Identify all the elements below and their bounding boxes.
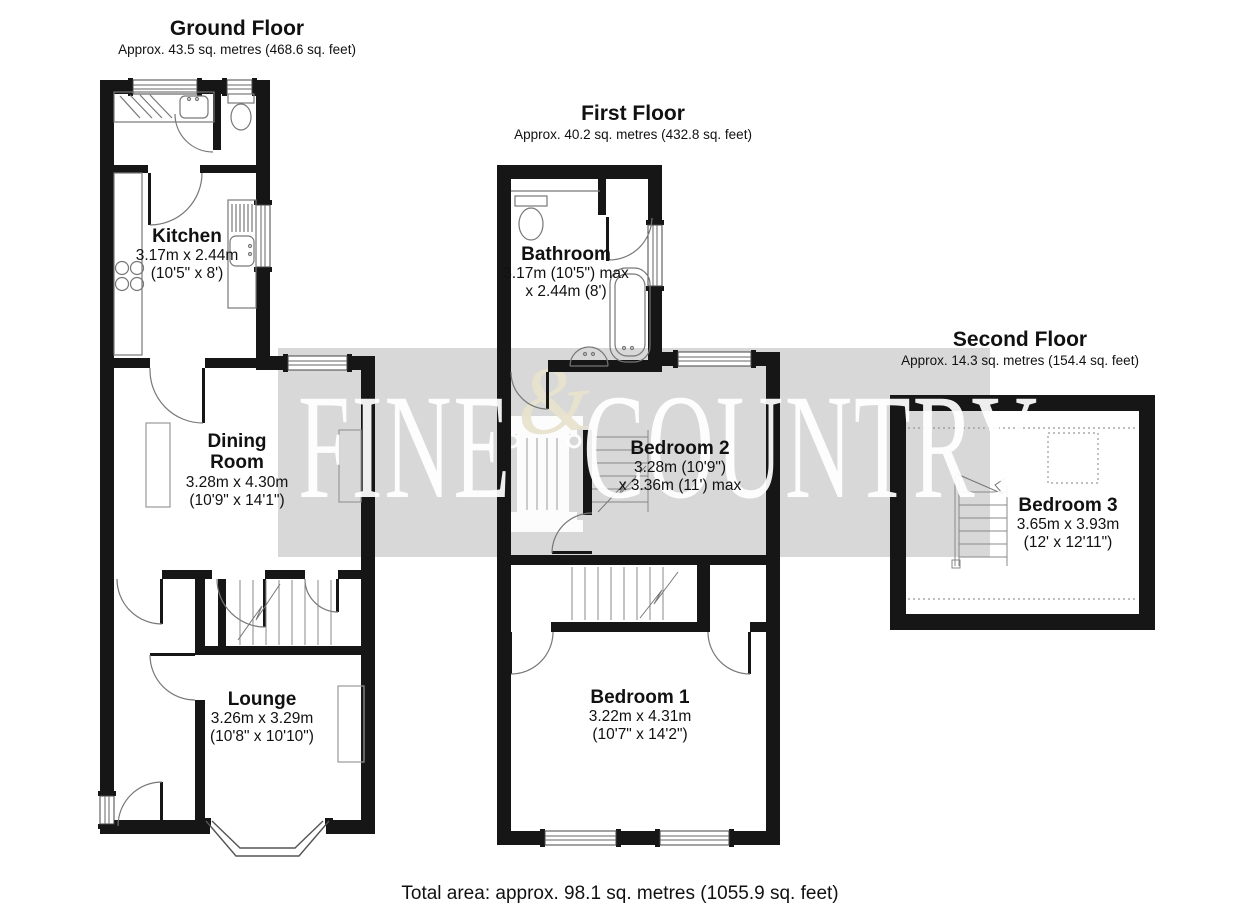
- room-label-dining-room: Dining Room 3.28m x 4.30m (10'9" x 14'1"…: [127, 431, 347, 509]
- skylight-dotted-square: [1048, 433, 1098, 483]
- bay-window: [206, 821, 329, 856]
- room-label-bathroom: Bathroom 3.17m (10'5") max x 2.44m (8'): [456, 244, 676, 301]
- wc-cistern-icon: [515, 196, 547, 206]
- first-floor-stairs-lower: [572, 567, 678, 620]
- room-label-bedroom-3: Bedroom 3 3.65m x 3.93m (12' x 12'11"): [958, 495, 1178, 552]
- room-label-bedroom-2: Bedroom 2 3.28m (10'9") x 3.36m (11') ma…: [570, 438, 790, 495]
- ground-floor-stairs: [238, 580, 331, 645]
- toilet-icon: [519, 208, 543, 240]
- wc-cistern-icon: [228, 94, 254, 103]
- room-label-bedroom-1: Bedroom 1 3.22m x 4.31m (10'7" x 14'2"): [530, 687, 750, 744]
- room-label-lounge: Lounge 3.26m x 3.29m (10'8" x 10'10"): [152, 689, 372, 746]
- ground-floor-title: Ground Floor Approx. 43.5 sq. metres (46…: [67, 17, 407, 58]
- room-label-kitchen: Kitchen 3.17m x 2.44m (10'5" x 8'): [77, 226, 297, 283]
- toilet-icon: [231, 104, 251, 130]
- sink-bowl-icon: [180, 96, 208, 118]
- first-floor-title: First Floor Approx. 40.2 sq. metres (432…: [463, 102, 803, 143]
- total-area-label: Total area: approx. 98.1 sq. metres (105…: [300, 883, 940, 905]
- second-floor-title: Second Floor Approx. 14.3 sq. metres (15…: [850, 328, 1190, 369]
- kitchen-fixtures: [114, 92, 256, 355]
- floorplan-page: &: [0, 0, 1250, 909]
